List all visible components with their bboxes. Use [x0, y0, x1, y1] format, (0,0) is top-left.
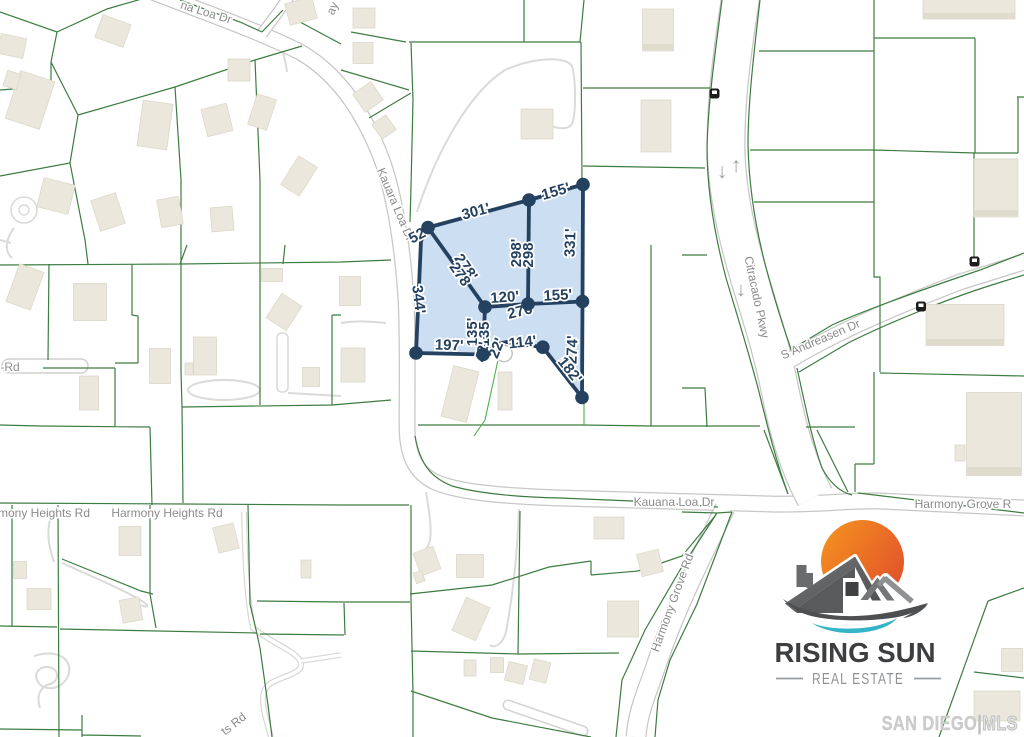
svg-text:SAN DIEGO|MLS: SAN DIEGO|MLS	[882, 711, 1018, 734]
svg-text:↓: ↓	[717, 160, 728, 183]
svg-text:REAL ESTATE: REAL ESTATE	[812, 671, 904, 688]
svg-text:RISING SUN: RISING SUN	[775, 637, 936, 668]
svg-text:344': 344'	[408, 284, 428, 314]
svg-text:331': 331'	[562, 228, 580, 257]
svg-text:114': 114'	[508, 333, 537, 353]
svg-text:-Rd: -Rd	[0, 360, 19, 374]
svg-text:↓: ↓	[736, 279, 746, 301]
svg-text:↑: ↑	[731, 154, 742, 177]
svg-text:mony Heights Rd: mony Heights Rd	[0, 506, 90, 520]
svg-text:Harmony Grove R: Harmony Grove R	[915, 497, 1012, 511]
svg-text:Kauana Loa Dr: Kauana Loa Dr	[634, 495, 715, 509]
svg-text:Harmony Heights Rd: Harmony Heights Rd	[111, 506, 222, 520]
svg-text:155': 155'	[543, 286, 572, 304]
svg-text:298: 298	[520, 242, 537, 267]
svg-text:197': 197'	[435, 337, 464, 355]
